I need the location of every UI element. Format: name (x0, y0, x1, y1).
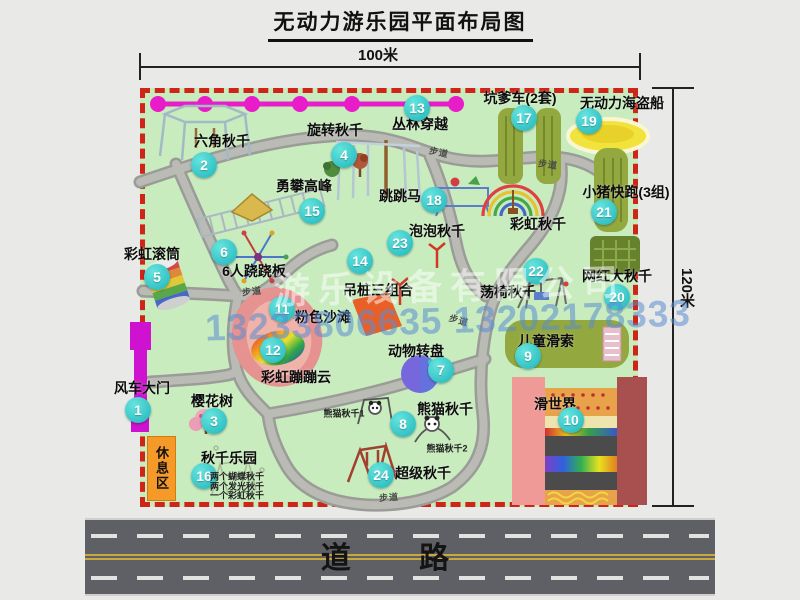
attraction-label-8: 熊猫秋千 (417, 399, 473, 419)
attraction-badge-18: 18 (421, 187, 447, 213)
attraction-label-5: 彩虹滚筒 (124, 244, 180, 264)
attraction-badge-17: 17 (511, 105, 537, 131)
attraction-sublabel-8-1: 熊猫秋千1 (323, 407, 364, 420)
rainbow-swing-icon (483, 186, 543, 216)
unnumbered-label-1: 彩虹秋千 (510, 214, 566, 234)
attraction-badge-8: 8 (390, 411, 416, 437)
attraction-label-24: 超级秋千 (395, 463, 451, 483)
dimension-line-right (672, 88, 674, 507)
page-title: 无动力游乐园平面布局图 (0, 6, 800, 42)
attraction-badge-23: 23 (387, 230, 413, 256)
road: 道 路 (85, 518, 715, 596)
dimension-height-label: 120米 (676, 268, 697, 308)
attraction-label-12: 彩虹蹦蹦云 (261, 367, 331, 387)
attraction-label-2: 六角秋千 (194, 131, 250, 151)
attraction-label-15: 勇攀高峰 (276, 176, 332, 196)
dimension-width-label: 100米 (358, 44, 398, 65)
attraction-sublabel-8-2: 熊猫秋千2 (426, 442, 467, 455)
attraction-label-11: 粉色沙滩 (295, 307, 351, 327)
attraction-badge-14: 14 (347, 248, 373, 274)
park-map-page: 无动力游乐园平面布局图 100米 120米 (0, 0, 800, 600)
rest-area-label: 休息区 (152, 446, 171, 491)
attraction-badge-3: 3 (201, 408, 227, 434)
attraction-label-23: 泡泡秋千 (409, 221, 465, 241)
attraction-label-14: 吊桩三组合 (343, 280, 413, 300)
attraction-badge-21: 21 (591, 199, 617, 225)
attraction-badge-11: 11 (269, 296, 295, 322)
slide-world-icon (512, 377, 647, 505)
attraction-badge-24: 24 (368, 462, 394, 488)
attraction-badge-12: 12 (260, 337, 286, 363)
attraction-badge-13: 13 (404, 95, 430, 121)
dimension-tick (652, 87, 694, 89)
road-label: 道 路 (321, 533, 479, 577)
attraction-label-4: 旋转秋千 (307, 120, 363, 140)
rest-area: 休息区 (147, 436, 176, 501)
footpath-label-5: 步道 (379, 490, 400, 504)
dimension-tick (639, 53, 641, 80)
attraction-label-22: 荡椅秋千 (480, 282, 536, 302)
dimension-tick (139, 53, 141, 80)
attraction-sublabel-16-3: 一个彩虹秋千 (210, 489, 264, 502)
attraction-badge-5: 5 (144, 264, 170, 290)
attraction-badge-19: 19 (576, 108, 602, 134)
attraction-badge-20: 20 (604, 284, 630, 310)
footpath-label-3: 步道 (537, 156, 559, 172)
attraction-badge-10: 10 (558, 407, 584, 433)
attraction-label-1: 风车大门 (114, 378, 170, 398)
attraction-badge-2: 2 (191, 152, 217, 178)
attraction-badge-22: 22 (523, 258, 549, 284)
attraction-label-21: 小猪快跑(3组) (582, 182, 669, 202)
attraction-badge-6: 6 (211, 239, 237, 265)
attraction-badge-1: 1 (125, 397, 151, 423)
attraction-badge-7: 7 (428, 357, 454, 383)
attraction-label-6: 6人跷跷板 (222, 261, 286, 281)
footpath-label-1: 步道 (241, 283, 262, 298)
attraction-badge-15: 15 (299, 198, 325, 224)
attraction-label-18: 跳跳马 (379, 186, 421, 206)
dimension-tick (652, 505, 694, 507)
attraction-label-20: 网红大秋千 (582, 266, 652, 286)
dimension-line-top (140, 66, 640, 68)
attraction-badge-4: 4 (331, 142, 357, 168)
attraction-badge-9: 9 (515, 343, 541, 369)
